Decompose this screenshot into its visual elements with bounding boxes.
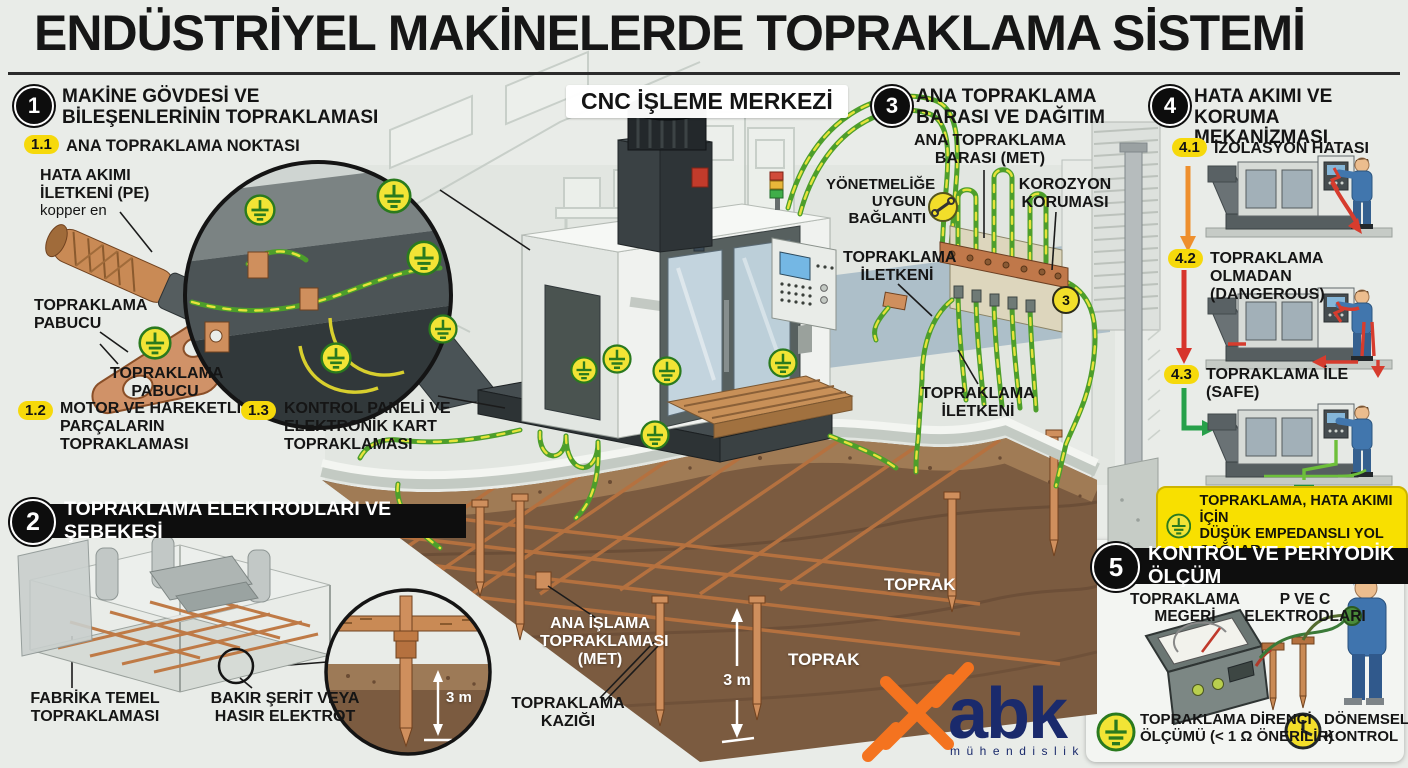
inset-depth-label: 3 m xyxy=(446,690,472,707)
section-5-title: KONTROL VE PERİYODİK ÖLÇÜM xyxy=(1118,548,1408,584)
step-4-1-label: İZOLASYON HATASI xyxy=(1214,140,1369,158)
met-slab-label: ANA İŞLAMA TOPRAKLAMASI (MET) xyxy=(540,615,660,669)
mini-machine-4-3 xyxy=(1206,404,1392,494)
corrosion-label: KOROZYON KORUMASI xyxy=(1000,176,1130,212)
inset-ground-rod xyxy=(326,590,490,754)
foundation-label: FABRİKA TEMEL TOPRAKLAMASI xyxy=(10,690,180,726)
mini-machine-4-1 xyxy=(1206,156,1392,237)
soil-label-a: TOPRAK xyxy=(884,575,955,594)
item-1-1-label: ANA TOPRAKLAMA NOKTASI xyxy=(66,137,300,155)
step-4-3-label: TOPRAKLAMA İLE (SAFE) xyxy=(1206,366,1348,402)
regulation-label: YÖNETMELİĞE UYGUN BAĞLANTI xyxy=(826,177,926,227)
page-title: ENDÜSTRİYEL MAKİNELERDE TOPRAKLAMA SİSTE… xyxy=(34,4,1305,62)
item-1-2-label: MOTOR VE HAREKETLİ PARÇALARIN TOPRAKLAMA… xyxy=(60,400,241,454)
busbar-number-badge: 3 xyxy=(1052,286,1080,314)
item-1-1-number: 1.1 xyxy=(24,135,59,154)
item-1-2-number: 1.2 xyxy=(18,401,53,420)
conductor-label-b: TOPRAKLAMA İLETKENİ xyxy=(914,385,1042,421)
infographic-grounding-system: { "title": "ENDÜSTRİYEL MAKİNELERDE TOPR… xyxy=(0,0,1408,768)
logo-abk-subtext: mühendislik xyxy=(950,744,1085,758)
title-divider xyxy=(8,72,1400,75)
step-4-2-label: TOPRAKLAMA OLMADAN (DANGEROUS) xyxy=(1210,250,1408,304)
section-5-number: 5 xyxy=(1092,543,1140,591)
earth-megger xyxy=(1146,610,1268,724)
foundation-illustration xyxy=(18,536,330,692)
step-4-2-number: 4.2 xyxy=(1168,249,1203,268)
step-arrow-4-1 xyxy=(1180,166,1196,252)
resistance-ground-icon xyxy=(1098,714,1134,750)
item-1-3-number: 1.3 xyxy=(241,401,276,420)
logo-abk-text: abk xyxy=(948,678,1066,750)
lug-label-b: TOPRAKLAMA PABUCU xyxy=(110,365,220,401)
step-4-3-number: 4.3 xyxy=(1164,365,1199,384)
pe-conductor-label: HATA AKIMI İLETKENİ (PE) xyxy=(40,167,149,203)
section-2-number: 2 xyxy=(10,499,56,545)
lug-label-a: TOPRAKLAMA PABUCU xyxy=(34,297,147,333)
wrench-icon xyxy=(929,193,957,221)
ground-rod-label: TOPRAKLAMA KAZIĞI xyxy=(498,695,638,731)
pe-conductor-note: kopper en xyxy=(40,203,107,220)
section-1-number: 1 xyxy=(14,86,54,126)
soil-label-b: TOPRAK xyxy=(788,650,859,669)
cnc-title: CNC İŞLEME MERKEZİ xyxy=(566,85,848,118)
megger-label: TOPRAKLAMA MEGERİ xyxy=(1126,591,1244,626)
item-1-3-label: KONTROL PANELİ VE ELEKTRONİK KART TOPRAK… xyxy=(284,400,451,454)
section-3-number: 3 xyxy=(872,86,912,126)
electrodes-label: P VE C ELEKTRODLARI xyxy=(1240,591,1370,626)
busbar-label: ANA TOPRAKLAMA BARASI (MET) xyxy=(900,132,1080,168)
electrode-label: BAKIR ŞERİT VEYA HASIR ELEKTROT xyxy=(190,690,380,726)
resistance-label: TOPRAKLAMA DİRENCİ ÖLÇÜMÜ (< 1 Ω ÖNERİLİ… xyxy=(1140,712,1333,746)
soil-depth-label: 3 m xyxy=(714,672,760,690)
section-4-number: 4 xyxy=(1150,86,1190,126)
section-1-title: MAKİNE GÖVDESİ VE BİLEŞENLERİNİN TOPRAKL… xyxy=(62,87,378,128)
step-arrow-4-2 xyxy=(1176,270,1192,364)
periodic-label: DÖNEMSEL KONTROL xyxy=(1324,712,1408,746)
section-2-title: TOPRAKLAMA ELEKTRODLARI VE ŞEBEKESİ xyxy=(34,504,466,538)
step-4-1-number: 4.1 xyxy=(1172,138,1207,157)
note-ground-icon xyxy=(1166,510,1191,542)
conductor-label-a: TOPRAKLAMA İLETKENİ xyxy=(843,249,951,285)
section-3-title: ANA TOPRAKLAMA BARASI VE DAĞITIM xyxy=(916,87,1105,128)
